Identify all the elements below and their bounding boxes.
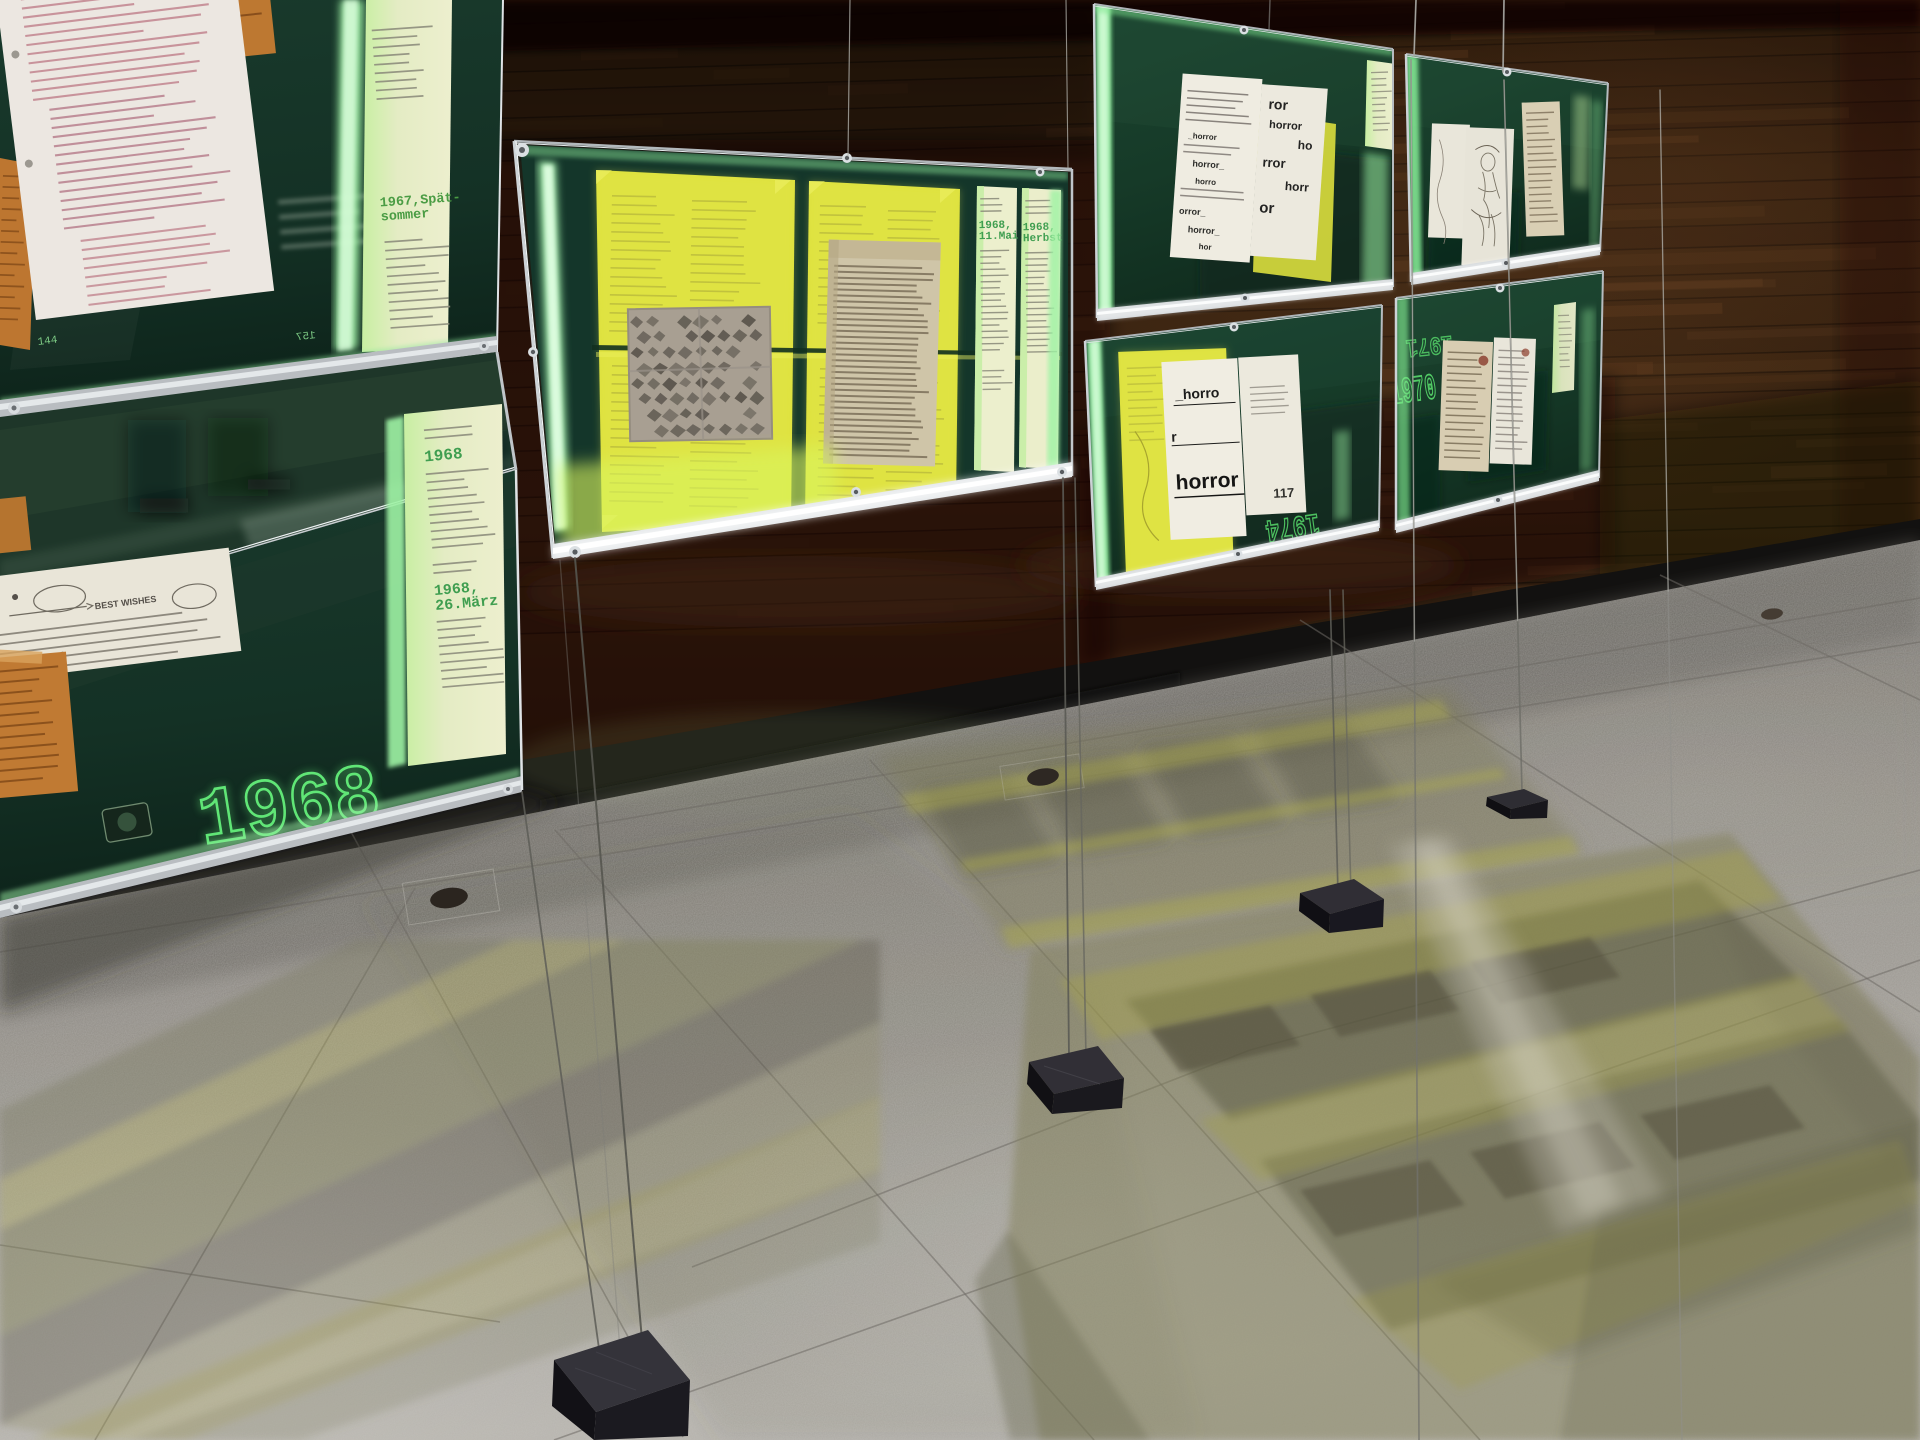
svg-text:horror: horror <box>1269 119 1303 133</box>
svg-text:1968: 1968 <box>424 445 464 466</box>
svg-text:horror: horror <box>1175 468 1239 494</box>
svg-text:144: 144 <box>37 335 59 349</box>
svg-text:157: 157 <box>295 330 316 344</box>
svg-text:or: or <box>1259 199 1275 217</box>
svg-text:117: 117 <box>1273 485 1295 501</box>
svg-text:rror: rror <box>1262 154 1286 171</box>
svg-text:ho: ho <box>1297 138 1313 153</box>
svg-text:orror_: orror_ <box>1179 206 1207 218</box>
svg-text:_horro: _horro <box>1174 384 1220 402</box>
svg-text:horr: horr <box>1284 179 1309 195</box>
svg-text:11.Mai: 11.Mai <box>979 230 1019 243</box>
svg-text:hor: hor <box>1198 242 1211 252</box>
svg-text:horro: horro <box>1195 177 1217 187</box>
svg-text:ror: ror <box>1268 96 1289 113</box>
